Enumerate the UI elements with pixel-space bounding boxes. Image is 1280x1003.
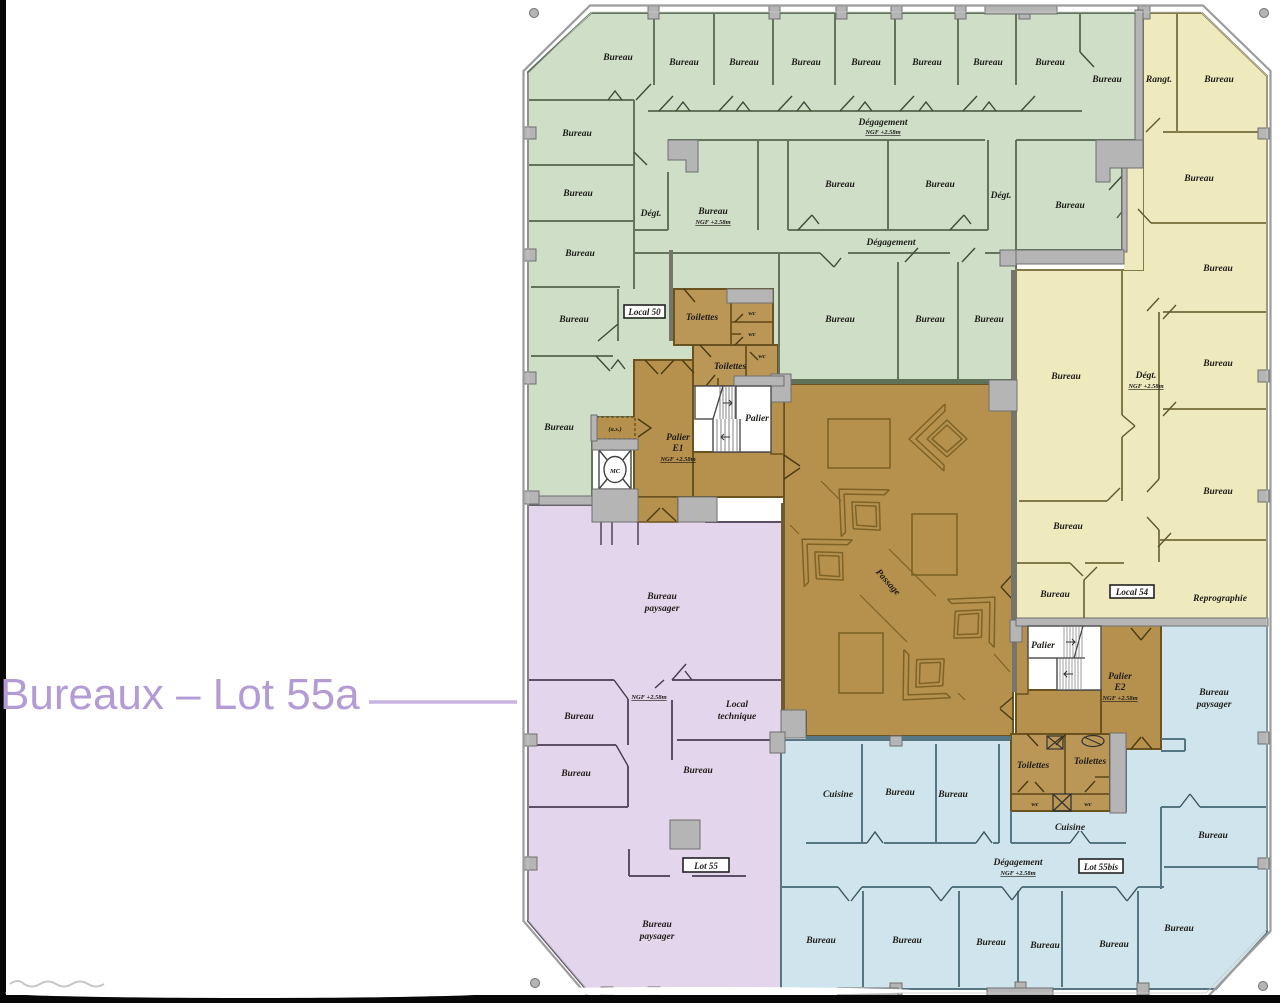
svg-text:Bureau: Bureau xyxy=(975,938,1006,948)
svg-text:NGF +2.58m: NGF +2.58m xyxy=(1127,383,1163,390)
svg-text:Bureau: Bureau xyxy=(1202,359,1233,369)
svg-text:Bureau: Bureau xyxy=(1039,590,1070,600)
svg-text:NGF +2.58m: NGF +2.58m xyxy=(999,870,1035,877)
svg-text:Reprographie: Reprographie xyxy=(1192,594,1248,604)
svg-text:Dégagement: Dégagement xyxy=(865,238,915,248)
svg-text:Bureau: Bureau xyxy=(561,129,592,139)
svg-text:paysager: paysager xyxy=(1196,700,1232,710)
svg-text:Palier: Palier xyxy=(1108,672,1132,682)
svg-text:Bureau: Bureau xyxy=(1052,522,1083,532)
svg-text:wc: wc xyxy=(758,353,765,360)
svg-text:MC: MC xyxy=(609,468,621,475)
svg-text:Local: Local xyxy=(725,700,749,710)
svg-text:Lot 55: Lot 55 xyxy=(693,861,718,871)
svg-text:Bureau: Bureau xyxy=(646,592,677,602)
svg-text:Bureau: Bureau xyxy=(602,53,633,63)
svg-text:Toilettes: Toilettes xyxy=(1017,761,1050,771)
svg-text:Bureau: Bureau xyxy=(824,180,855,190)
svg-text:Bureau: Bureau xyxy=(728,58,759,68)
svg-text:Bureau: Bureau xyxy=(1202,487,1233,497)
svg-text:wc: wc xyxy=(1031,801,1038,808)
svg-text:Bureau: Bureau xyxy=(1198,688,1229,698)
svg-text:Cuisine: Cuisine xyxy=(823,790,854,800)
svg-text:Cuisine: Cuisine xyxy=(1055,823,1086,833)
svg-text:E1: E1 xyxy=(671,444,683,454)
svg-text:Palier: Palier xyxy=(666,433,690,443)
svg-text:Dégt.: Dégt. xyxy=(1135,371,1157,381)
svg-text:Dégagement: Dégagement xyxy=(992,858,1042,868)
svg-text:Toilettes: Toilettes xyxy=(714,362,747,372)
svg-text:Toilettes: Toilettes xyxy=(1074,757,1107,767)
svg-text:NGF +2.58m: NGF +2.58m xyxy=(864,129,900,136)
svg-text:Bureau: Bureau xyxy=(805,936,836,946)
svg-text:Bureau: Bureau xyxy=(1091,75,1122,85)
svg-text:paysager: paysager xyxy=(639,932,675,942)
svg-text:Toilettes: Toilettes xyxy=(686,313,719,323)
svg-text:Bureau: Bureau xyxy=(563,712,594,722)
svg-text:Bureau: Bureau xyxy=(1163,924,1194,934)
svg-text:NGF +2.58m: NGF +2.58m xyxy=(1101,695,1137,702)
svg-text:Local 50: Local 50 xyxy=(627,307,661,317)
svg-text:Bureau: Bureau xyxy=(924,180,955,190)
svg-text:Bureau: Bureau xyxy=(562,189,593,199)
svg-text:Bureau: Bureau xyxy=(1034,58,1065,68)
svg-text:NGF +2.58m: NGF +2.58m xyxy=(630,694,666,701)
svg-text:Bureau: Bureau xyxy=(1203,75,1234,85)
svg-text:Bureau: Bureau xyxy=(891,936,922,946)
svg-text:Bureau: Bureau xyxy=(668,58,699,68)
svg-text:Bureau: Bureau xyxy=(564,249,595,259)
svg-text:Dégt.: Dégt. xyxy=(640,209,662,219)
svg-text:Bureau: Bureau xyxy=(973,315,1004,325)
svg-text:(a.s.): (a.s.) xyxy=(608,426,621,433)
svg-text:Bureau: Bureau xyxy=(1098,940,1129,950)
svg-text:Dégt.: Dégt. xyxy=(990,191,1012,201)
svg-text:E2: E2 xyxy=(1113,683,1125,693)
svg-text:Bureau: Bureau xyxy=(697,207,728,217)
svg-text:Palier: Palier xyxy=(1031,641,1055,651)
svg-text:Bureau: Bureau xyxy=(972,58,1003,68)
svg-text:technique: technique xyxy=(718,712,757,722)
svg-text:Bureau: Bureau xyxy=(682,766,713,776)
svg-text:Bureau: Bureau xyxy=(824,315,855,325)
svg-text:Bureau: Bureau xyxy=(1197,831,1228,841)
svg-text:Bureau: Bureau xyxy=(884,788,915,798)
svg-text:Rangt.: Rangt. xyxy=(1145,75,1172,85)
svg-text:Bureau: Bureau xyxy=(1050,372,1081,382)
svg-text:Lot 55bis: Lot 55bis xyxy=(1083,862,1119,872)
svg-text:Bureau: Bureau xyxy=(543,423,574,433)
svg-text:Bureau: Bureau xyxy=(1054,201,1085,211)
svg-text:Bureau: Bureau xyxy=(850,58,881,68)
svg-text:NGF +2.58m: NGF +2.58m xyxy=(694,219,730,226)
svg-text:Bureau: Bureau xyxy=(914,315,945,325)
svg-text:Bureau: Bureau xyxy=(1183,174,1214,184)
svg-text:Bureau: Bureau xyxy=(790,58,821,68)
svg-text:paysager: paysager xyxy=(644,604,680,614)
svg-text:Dégagement: Dégagement xyxy=(857,118,907,128)
svg-text:Bureau: Bureau xyxy=(1029,941,1060,951)
svg-text:wc: wc xyxy=(1084,801,1091,808)
svg-text:Palier: Palier xyxy=(745,414,769,424)
svg-text:wc: wc xyxy=(748,331,755,338)
svg-text:Bureau: Bureau xyxy=(560,769,591,779)
svg-text:Bureau: Bureau xyxy=(1202,264,1233,274)
svg-text:Bureau: Bureau xyxy=(937,790,968,800)
svg-text:Local 54: Local 54 xyxy=(1115,587,1149,597)
svg-text:Bureau: Bureau xyxy=(911,58,942,68)
svg-text:Bureau: Bureau xyxy=(558,315,589,325)
svg-text:wc: wc xyxy=(748,310,755,317)
svg-text:NGF +2.58m: NGF +2.58m xyxy=(659,456,695,463)
svg-text:Bureau: Bureau xyxy=(641,920,672,930)
